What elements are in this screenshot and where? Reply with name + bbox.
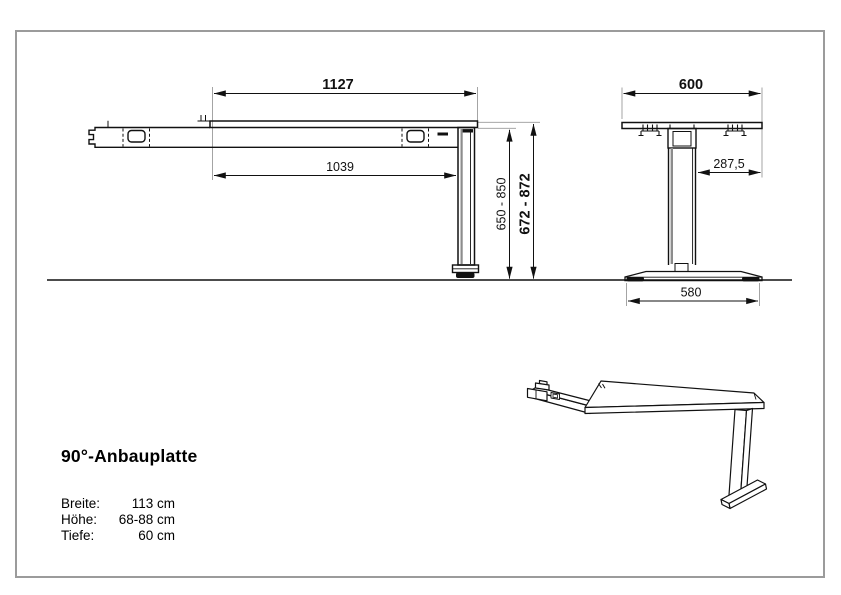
product-info: 90°-Anbauplatte Breite: 113 cm Höhe: 68-… bbox=[61, 446, 197, 543]
dim-column-offset-label: 287,5 bbox=[713, 157, 744, 171]
front-column-mount-inner bbox=[673, 132, 691, 147]
side-cutout-right bbox=[407, 131, 424, 143]
side-attachment-ticks bbox=[108, 115, 210, 127]
spec-value: 113 cm bbox=[111, 496, 175, 512]
front-column-outlet bbox=[675, 264, 688, 272]
front-rail-right bbox=[724, 125, 747, 136]
spec-value: 68-88 cm bbox=[111, 512, 175, 528]
front-view-extension-lines bbox=[622, 88, 762, 307]
side-leg-column bbox=[458, 128, 475, 266]
spec-row-tiefe: Tiefe: 60 cm bbox=[61, 528, 197, 544]
side-foot-pad bbox=[456, 273, 475, 279]
dim-leg-height-label: 650 - 850 bbox=[495, 178, 509, 231]
spec-value: 60 cm bbox=[111, 528, 175, 544]
persp-clamp-hole-inner bbox=[553, 394, 558, 398]
technical-drawing-page: 1127 1039 650 - 850 672 - 872 bbox=[0, 0, 841, 595]
side-cutout-left bbox=[128, 131, 145, 143]
perspective-view bbox=[528, 381, 767, 509]
front-base-pad-left bbox=[627, 277, 645, 281]
side-view-extension-lines bbox=[213, 87, 541, 180]
front-view bbox=[622, 88, 762, 307]
spec-label: Tiefe: bbox=[61, 528, 111, 544]
front-base bbox=[625, 272, 762, 281]
dim-base-width-label: 580 bbox=[681, 286, 702, 300]
side-tabletop bbox=[210, 121, 478, 128]
dim-top-width-label: 1127 bbox=[322, 77, 353, 93]
front-base-pad-right bbox=[742, 277, 760, 281]
dim-arm-length-label: 1039 bbox=[326, 160, 354, 174]
front-rail-left bbox=[639, 125, 662, 136]
dim-total-height-label: 672 - 872 bbox=[518, 173, 534, 234]
side-view bbox=[89, 87, 540, 279]
spec-label: Breite: bbox=[61, 496, 111, 512]
spec-label: Höhe: bbox=[61, 512, 111, 528]
spec-list: Breite: 113 cm Höhe: 68-88 cm Tiefe: 60 … bbox=[61, 496, 197, 543]
dim-top-depth-label: 600 bbox=[679, 77, 703, 93]
product-title: 90°-Anbauplatte bbox=[61, 446, 197, 467]
spec-row-hoehe: Höhe: 68-88 cm bbox=[61, 512, 197, 528]
spec-row-breite: Breite: 113 cm bbox=[61, 496, 197, 512]
